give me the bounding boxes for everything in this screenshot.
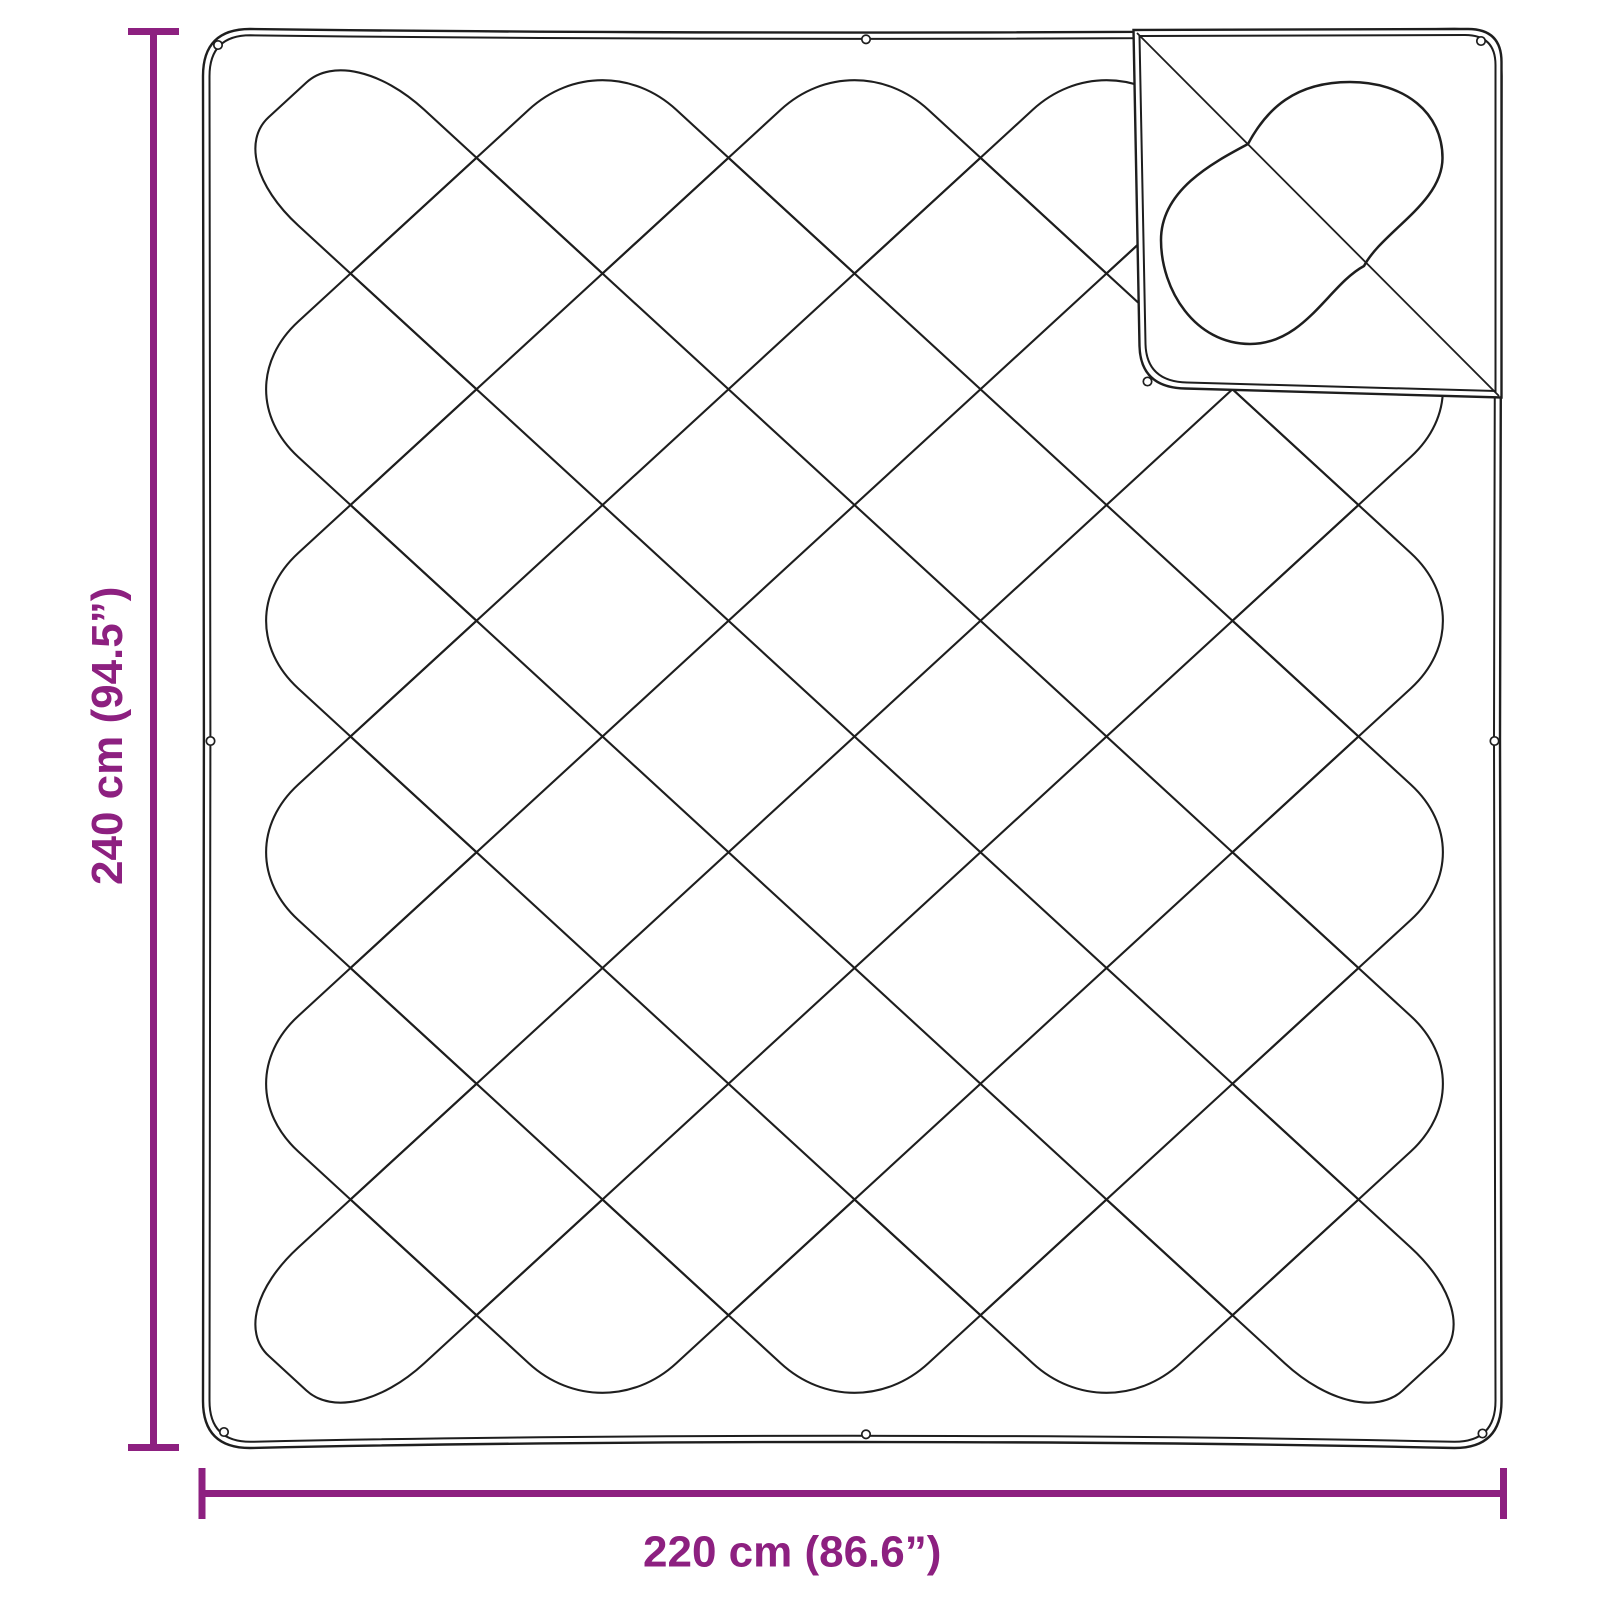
svg-text:240 cm (94.5”): 240 cm (94.5”)	[83, 587, 132, 885]
svg-text:220 cm (86.6”): 220 cm (86.6”)	[643, 1528, 941, 1577]
